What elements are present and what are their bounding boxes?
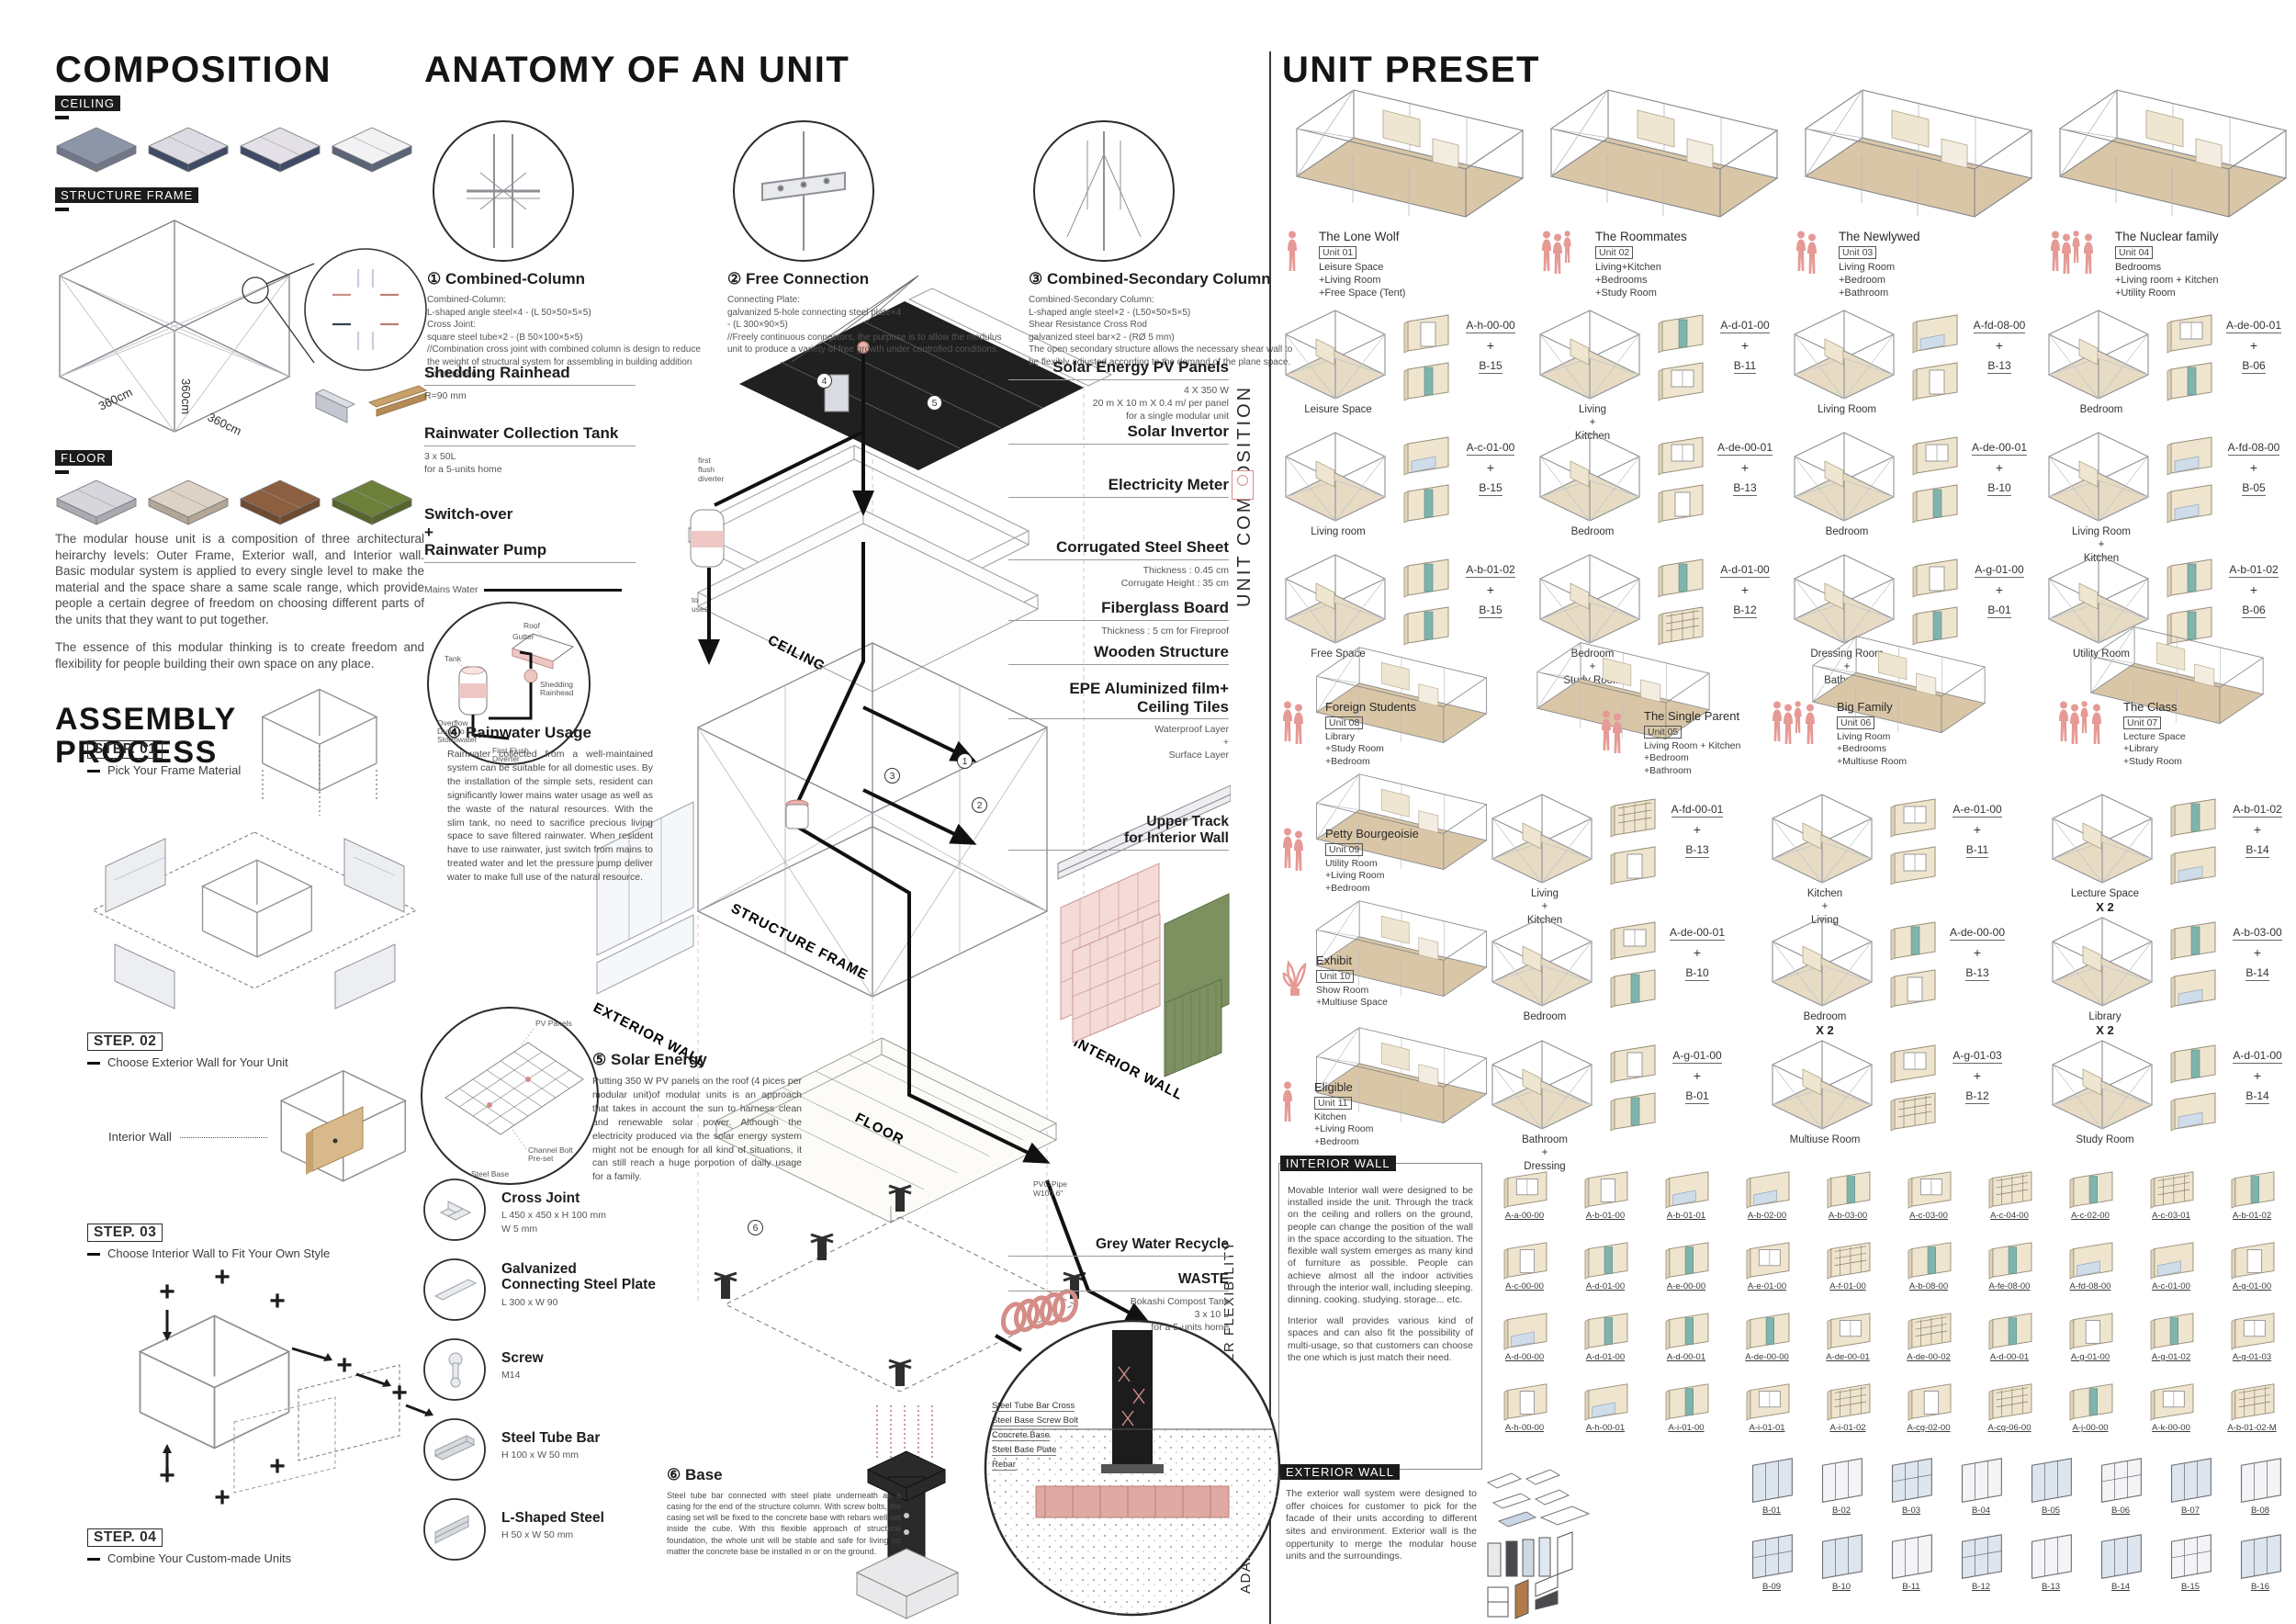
interior-wall-pink-grid — [1073, 914, 1160, 1043]
interior-wall-thumb — [1884, 1042, 1941, 1086]
figure: ④ Rainwater Usage — [447, 724, 653, 742]
figure: Study Room — [2048, 1038, 2162, 1146]
svg-text:+: + — [159, 1277, 175, 1307]
figure — [1651, 311, 1708, 403]
step-02-box: STEP. 02 — [87, 1032, 163, 1051]
figure: Corrugated Steel Sheet — [1008, 538, 1229, 560]
detail-2: ② Free Connection Connecting Plate: galv… — [727, 270, 1003, 356]
exterior-wall-thumb — [1816, 1456, 1867, 1506]
frame-wire — [698, 643, 1047, 997]
interior-wall-thumb — [1901, 1310, 1956, 1352]
interior-wall-thumb — [1884, 966, 1941, 1010]
exterior-code-B-12: B-12 — [1948, 1532, 2014, 1592]
figure: Living + Kitchen — [1536, 308, 1649, 443]
figure: Bedroom — [1536, 525, 1649, 538]
figure: Unit 02 — [1595, 246, 1633, 259]
figure: A-fd-00-01+B-13 — [1664, 792, 1730, 858]
figure: A-de-00-00+B-13 — [1944, 915, 2010, 981]
figure: A-de-00-01+B-13 — [1712, 430, 1778, 496]
iso-room-icon — [1488, 1038, 1596, 1133]
text: Combined-Column — [445, 270, 585, 288]
exterior-code-B-03: B-03 — [1878, 1456, 1944, 1516]
comp-mid-cell-2-2: Study Room A-d-01-00+B-14 — [2048, 1038, 2296, 1157]
interior-code-A-i-01-00: A-i-01-00 — [1648, 1381, 1725, 1433]
iso-room-icon — [1790, 430, 1898, 525]
figure: BedroomX 2 — [1768, 1010, 1882, 1039]
exterior-wall-thumb — [1885, 1456, 1937, 1506]
svg-text:+: + — [391, 1378, 408, 1408]
detail-2-spec: Connecting Plate: galvanized 5-hole conn… — [727, 294, 1003, 356]
part-icon — [422, 1257, 487, 1322]
interior-wall-thumb — [2224, 1168, 2279, 1211]
step-04: STEP. 04 Combine Your Custom-made Units — [87, 1528, 291, 1565]
interior-code-A-b-03-00: A-b-03-00 — [1809, 1168, 1886, 1221]
iso-room-icon — [1790, 308, 1898, 403]
exterior-code-B-15: B-15 — [2157, 1532, 2223, 1592]
interior-wall-thumb — [1604, 1042, 1660, 1086]
iso-room-icon — [1536, 308, 1644, 403]
svg-text:+: + — [336, 1350, 353, 1381]
interior-wall-thumb — [1820, 1239, 1875, 1281]
figure: Screw — [501, 1350, 726, 1366]
figure: A-g-01-00+B-01 — [1966, 552, 2032, 618]
interior-wall-thumb — [1651, 359, 1708, 403]
label-upper-track: Upper Track for Interior Wall — [1008, 814, 1229, 851]
material-angle-steel — [316, 389, 355, 423]
base-block: ⑥ Base Steel tube bar connected with ste… — [667, 1466, 901, 1557]
exterior-code-B-02: B-02 — [1808, 1456, 1874, 1516]
iso-slab-icon — [239, 478, 321, 531]
figure: Electricity Meter — [1008, 476, 1229, 498]
figure — [2160, 311, 2217, 403]
figure: R=90 mm — [424, 389, 636, 402]
interior-wall-thumb — [1497, 1310, 1552, 1352]
interior-code-A-c-03-00: A-c-03-00 — [1890, 1168, 1967, 1221]
figure: Study Room — [2048, 1133, 2162, 1146]
ceiling-tag: CEILING — [55, 96, 120, 111]
iso-container-icon — [1804, 85, 2033, 227]
interior-code-A-a-00-00: A-a-00-00 — [1486, 1168, 1563, 1221]
right-label-2: Electricity Meter — [1008, 476, 1229, 498]
figure: Leisure Space — [1281, 308, 1395, 416]
exterior-wall-tag: EXTERIOR WALL — [1280, 1464, 1400, 1480]
figure: Unit 05 — [1644, 726, 1682, 739]
intro-paragraph-2: The essence of this modular thinking is … — [55, 639, 424, 671]
interior-wall-thumb — [2144, 1239, 2199, 1281]
interior-wall-text: Movable Interior wall were designed to b… — [1288, 1185, 1473, 1364]
detail-3: ③ Combined-Secondary Column Combined-Sec… — [1029, 270, 1304, 368]
figure: Living Room +Bedrooms +Multiuse Room — [1837, 731, 1907, 768]
exterior-wall-thumb — [1885, 1532, 1937, 1582]
preset-unit-caption-Unit 02: The RoommatesUnit 02Living+Kitchen +Bedr… — [1540, 230, 1770, 299]
dash — [55, 116, 69, 119]
callout-3: 3 — [884, 768, 900, 784]
svg-text:Gutter: Gutter — [512, 632, 535, 641]
interior-code-A-c-02-00: A-c-02-00 — [2052, 1168, 2129, 1221]
interior-wall-thumb — [1604, 1089, 1660, 1133]
part-icon — [422, 1497, 487, 1562]
exterior-code-B-09: B-09 — [1739, 1532, 1805, 1592]
figure: The Class — [2123, 700, 2186, 714]
detail-circle-secondary-column — [1030, 118, 1177, 265]
detail-circle-free-connection — [730, 118, 877, 265]
right-label-0: Solar Energy PV Panels4 X 350 W 20 m X 1… — [1008, 358, 1229, 423]
material-wood — [369, 386, 426, 416]
figure — [1397, 311, 1454, 403]
svg-text:Tank: Tank — [445, 654, 462, 663]
interior-wall-thumb — [1604, 919, 1660, 963]
interior-wall-thumb — [1884, 795, 1941, 840]
figure — [2164, 1042, 2221, 1133]
exterior-misc-parts-figure — [1480, 1466, 1733, 1620]
interior-wall-thumb — [1982, 1168, 2037, 1211]
figure: The Lone WolfUnit 01Leisure Space +Livin… — [1319, 230, 1405, 299]
interior-wall-thumb — [1906, 311, 1963, 355]
exterior-wall-thumb — [1746, 1456, 1797, 1506]
part-2: ScrewM14 — [422, 1337, 726, 1411]
interior-code-A-cg-02-00: A-cg-02-00 — [1890, 1381, 1967, 1433]
comp-mid-cell-2-0: Bathroom + Dressing A-g-01-00+B-01 — [1488, 1038, 1738, 1157]
figure: EligibleUnit 11Kitchen +Living Room +Bed… — [1314, 1080, 1374, 1148]
figure: The ClassUnit 07Lecture Space +Library +… — [2123, 700, 2186, 768]
dash — [55, 470, 69, 474]
right-label-6: EPE Aluminized film+ Ceiling TilesWaterp… — [1008, 680, 1229, 762]
dotted-leader — [180, 1137, 267, 1138]
right-label-stack: Solar Energy PV Panels4 X 350 W 20 m X 1… — [1008, 358, 1229, 753]
figure: Bedroom — [1488, 915, 1602, 1023]
interior-wall-thumb — [2160, 434, 2217, 478]
callout-6: 6 — [748, 1220, 763, 1235]
figure: Show Room +Multiuse Space — [1316, 985, 1388, 1009]
figure: Library +Study Room +Bedroom — [1325, 731, 1416, 768]
figure: X 2 — [2048, 1023, 2162, 1038]
ceiling-thumbnails — [55, 125, 413, 178]
exterior-wall-thumb — [2095, 1532, 2146, 1582]
interior-code-A-k-00-00: A-k-00-00 — [2133, 1381, 2210, 1433]
interior-code-A-fe-08-00: A-fe-08-00 — [1971, 1239, 2048, 1291]
iso-slab-icon — [55, 125, 138, 178]
figure: Unit 10 — [1316, 970, 1354, 983]
figure: Unit 03 — [1839, 246, 1876, 259]
figure: The Nuclear familyUnit 04Bedrooms +Livin… — [2115, 230, 2219, 299]
figure: Foreign StudentsUnit 08Library +Study Ro… — [1325, 700, 1416, 768]
interior-code-A-g-01-02: A-g-01-02 — [2133, 1310, 2210, 1362]
figure: A-b-01-02+B-15 — [1458, 552, 1524, 618]
rainwater-usage-text: Rainwater collected from a well-maintain… — [447, 748, 653, 885]
figure: Wooden Structure — [1008, 643, 1229, 665]
interior-code-A-b-01-02-M: A-b-01-02-M — [2213, 1381, 2290, 1433]
interior-code-A-cg-06-00: A-cg-06-00 — [1971, 1381, 2048, 1433]
figure — [1651, 556, 1708, 648]
exterior-wall-thumb — [2095, 1456, 2146, 1506]
svg-text:360cm: 360cm — [96, 385, 135, 413]
step-01: STEP. 01 Pick Your Frame Material — [87, 740, 241, 777]
figure: Unit 11 — [1314, 1097, 1352, 1110]
callout-4: 4 — [816, 373, 832, 389]
part-icon — [422, 1178, 487, 1242]
exterior-wall-text: The exterior wall system were designed t… — [1286, 1488, 1477, 1563]
mid-left-caption-Unit 11: EligibleUnit 11Kitchen +Living Room +Bed… — [1281, 1080, 1492, 1148]
interior-code-A-c-04-00: A-c-04-00 — [1971, 1168, 2048, 1221]
part-1: Galvanized Connecting Steel PlateL 300 x… — [422, 1257, 726, 1331]
interior-code-A-de-00-02: A-de-00-02 — [1890, 1310, 1967, 1362]
interior-code-A-i-01-01: A-i-01-01 — [1728, 1381, 1806, 1433]
figure: Bedroom — [2044, 308, 2158, 416]
figure — [1884, 795, 1941, 887]
interior-wall-thumb — [1901, 1168, 1956, 1211]
label-to-uses: to uses — [692, 595, 708, 614]
exterior-wall-thumb — [2165, 1456, 2216, 1506]
figure: Living + Kitchen — [1488, 792, 1602, 927]
interior-wall-thumb — [1884, 919, 1941, 963]
interior-wall-thumb — [1982, 1239, 2037, 1281]
exterior-wall-thumb — [2025, 1532, 2077, 1582]
figure — [1906, 434, 1963, 525]
figure: L 450 x 450 x H 100 mm W 5 mm — [501, 1209, 726, 1235]
iso-slab-icon — [239, 125, 321, 178]
interior-code-A-c-03-01: A-c-03-01 — [2133, 1168, 2210, 1221]
anatomy-title: ANATOMY OF AN UNIT — [424, 50, 850, 91]
exterior-code-B-06: B-06 — [2088, 1456, 2154, 1516]
figure: The Newlywed — [1839, 230, 1920, 243]
solar-detail-circle: PV Panels Channel BoltPre-set Steel Base — [418, 987, 606, 1208]
interior-wall-thumb — [1659, 1168, 1714, 1211]
interior-wall-thumb — [2224, 1310, 2279, 1352]
text: ⑥ — [667, 1466, 681, 1483]
person-icon — [1600, 709, 1637, 755]
text: ② — [727, 270, 741, 288]
text: Free Connection — [746, 270, 869, 288]
figure: ScrewM14 — [501, 1337, 726, 1382]
figure: A-de-00-01+B-10 — [1664, 915, 1730, 981]
figure: 3 x 50L for a 5-units home — [424, 450, 636, 476]
interior-wall-thumb — [2164, 1089, 2221, 1133]
interior-wall-thumb — [2164, 795, 2221, 840]
rain-tank — [459, 667, 487, 715]
figure: The Roommates — [1595, 230, 1687, 243]
interior-wall-thumb — [2063, 1381, 2118, 1423]
figure: Unit 08 — [1325, 716, 1363, 729]
iso-room-icon — [2048, 792, 2156, 887]
mid-caption-Unit 07: The ClassUnit 07Lecture Space +Library +… — [2057, 700, 2232, 768]
comp-cell-1-1: Bedroom A-de-00-01+B-13 — [1536, 430, 1785, 549]
figure: Movable Interior wall were designed to b… — [1288, 1185, 1473, 1306]
comp-mid-cell-1-2: LibraryX 2 A-b-03-00+B-14 — [2048, 915, 2296, 1034]
figure — [1884, 919, 1941, 1010]
interior-wall-thumb — [1397, 603, 1454, 648]
figure: A-b-01-02+B-14 — [2224, 792, 2290, 858]
figure: Bedroom — [2044, 403, 2158, 416]
part-icon — [422, 1417, 487, 1482]
interior-wall-thumb — [1739, 1381, 1795, 1423]
figure: The Single Parent — [1644, 709, 1740, 723]
svg-text:Pre-set: Pre-set — [528, 1154, 554, 1163]
iso-container-icon — [2058, 85, 2288, 227]
svg-text:PV Panels: PV Panels — [535, 1019, 572, 1028]
text: ③ — [1029, 270, 1042, 288]
figure: Big Family — [1837, 700, 1907, 714]
figure: ExhibitUnit 10Show Room +Multiuse Space — [1316, 953, 1388, 1009]
comp-mid-cell-0-1: Kitchen + Living A-e-01-00+B-11 — [1768, 792, 2018, 911]
svg-text:+: + — [269, 1286, 286, 1316]
label-waste: WASTE Bokashi Compost Tank 3 x 10 L for … — [1008, 1271, 1229, 1334]
figure: Cross JointL 450 x 450 x H 100 mm W 5 mm — [501, 1178, 726, 1235]
iso-room-icon — [1281, 308, 1390, 403]
iso-container-icon — [1549, 85, 1779, 227]
interior-wall-thumb — [1651, 311, 1708, 355]
interior-wall-thumb — [1982, 1310, 2037, 1352]
interior-code-A-b-01-02: A-b-01-02 — [2213, 1168, 2290, 1221]
figure: A-e-01-00+B-11 — [1944, 792, 2010, 858]
exterior-code-B-14: B-14 — [2088, 1532, 2154, 1592]
exterior-code-B-16: B-16 — [2227, 1532, 2293, 1592]
figure: Kitchen +Living Room +Bedroom — [1314, 1111, 1374, 1148]
figure — [1884, 1042, 1941, 1133]
interior-wall-thumb — [1820, 1168, 1875, 1211]
interior-wall-callout: Interior Wall — [108, 1130, 267, 1144]
label-pvc-pipe: PVC Pipe W100 6" — [1033, 1179, 1067, 1198]
interior-code-A-d-01-00: A-d-01-00 — [1567, 1239, 1644, 1291]
detail-circle-combined-column — [430, 118, 577, 265]
label-mains-water: Mains Water — [424, 584, 622, 595]
iso-slab-icon — [147, 478, 230, 531]
figure: Solar Invertor — [1008, 423, 1229, 445]
comp-cell-1-3: Living Room + Kitchen A-fd-08-00+B-05 — [2044, 430, 2294, 549]
figure: The Nuclear family — [2115, 230, 2219, 243]
figure: Bathroom + Dressing — [1488, 1038, 1602, 1173]
mid-left-caption-Unit 10: ExhibitUnit 10Show Room +Multiuse Space — [1281, 953, 1492, 1009]
figure: Utility Room +Living Room +Bedroom — [1325, 858, 1419, 895]
text: Interior Wall — [108, 1130, 172, 1144]
dash — [55, 208, 69, 211]
figure: A-d-01-00+B-11 — [1712, 308, 1778, 374]
exterior-wall-thumb — [1816, 1532, 1867, 1582]
interior-wall-thumb — [2063, 1239, 2118, 1281]
figure: Living room — [1281, 525, 1395, 538]
interior-wall-thumb — [2144, 1381, 2199, 1423]
interior-wall-thumb — [2164, 966, 2221, 1010]
interior-code-A-b-01-01: A-b-01-01 — [1648, 1168, 1725, 1221]
interior-wall-thumb — [1397, 556, 1454, 600]
exterior-code-B-01: B-01 — [1739, 1456, 1805, 1516]
text: ① — [427, 270, 441, 288]
exterior-wall-thumb — [1955, 1532, 2007, 1582]
interior-wall-thumb — [1906, 359, 1963, 403]
label-shedding-rainhead: Shedding Rainhead R=90 mm — [424, 364, 636, 402]
poster-board: COMPOSITION CEILING STRUCTURE FRAME 360c… — [0, 0, 2296, 1624]
interior-wall-thumb — [1397, 311, 1454, 355]
person-icon — [2057, 700, 2116, 746]
figure: Lecture Space +Library +Study Room — [2123, 731, 2186, 768]
text: Solar Energy — [611, 1051, 707, 1068]
figure: A-de-00-01+B-06 — [2221, 308, 2287, 374]
text: Mains Water — [424, 584, 478, 595]
figure: Unit 04 — [2115, 246, 2153, 259]
interior-code-A-g-01-03: A-g-01-03 — [2213, 1310, 2290, 1362]
step-03: STEP. 03 Choose Interior Wall to Fit You… — [87, 1224, 330, 1260]
iso-slab-icon — [147, 125, 230, 178]
interior-wall-mini-figure — [1054, 900, 1229, 1084]
iso-slab-icon — [55, 478, 138, 531]
figure: Bedroom — [1536, 430, 1649, 538]
figure — [1604, 1042, 1660, 1133]
exterior-code-B-08: B-08 — [2227, 1456, 2293, 1516]
structure-frame-figure: 360cm360cm360cm — [55, 213, 432, 447]
interior-code-A-d-01-00: A-d-01-00 — [1567, 1310, 1644, 1362]
iso-slab-icon — [331, 478, 413, 531]
text: Base — [685, 1466, 723, 1483]
person-icon — [1771, 700, 1829, 746]
preset-unit-caption-Unit 04: The Nuclear familyUnit 04Bedrooms +Livin… — [2049, 230, 2279, 299]
figure: Bedroom — [1790, 430, 1904, 538]
interior-code-A-d-00-01: A-d-00-01 — [1648, 1310, 1725, 1362]
exterior-wall-thumb — [1955, 1456, 2007, 1506]
figure: Waterproof Layer + Surface Layer — [1008, 723, 1229, 762]
figure: Exhibit — [1316, 953, 1388, 967]
figure: The Lone Wolf — [1319, 230, 1405, 243]
interior-wall-thumb — [1906, 481, 1963, 525]
interior-wall-thumb — [1578, 1381, 1633, 1423]
step-04-caption: Combine Your Custom-made Units — [87, 1551, 291, 1565]
figure: L 300 x W 90 — [501, 1296, 726, 1309]
mid-caption-Unit 06: Big FamilyUnit 06Living Room +Bedrooms +… — [1771, 700, 1945, 768]
iso-room-icon — [1536, 430, 1644, 525]
interior-wall-thumb — [1604, 843, 1660, 887]
interior-wall-thumb — [1739, 1168, 1795, 1211]
figure: A-de-00-01+B-10 — [1966, 430, 2032, 496]
figure: The RoommatesUnit 02Living+Kitchen +Bedr… — [1595, 230, 1687, 299]
figure: Living Room +Bedroom +Bathroom — [1839, 261, 1920, 299]
iso-room-icon — [1768, 792, 1876, 887]
comp-cell-1-0: Living room A-c-01-00+B-15 — [1281, 430, 1531, 549]
figure: Grey Water Recycle — [1008, 1236, 1229, 1257]
solar-energy-block: ⑤ Solar Energy Putting 350 W PV panels o… — [592, 1051, 802, 1184]
figure: M14 — [501, 1369, 726, 1382]
figure: A-b-01-02+B-06 — [2221, 552, 2287, 618]
label-switchover-pump: Switch-over + Rainwater Pump — [424, 505, 636, 563]
interior-code-A-de-00-01: A-de-00-01 — [1809, 1310, 1886, 1362]
figure: X 2 — [1768, 1023, 1882, 1038]
interior-wall-thumb — [2160, 311, 2217, 355]
figure: Foreign Students — [1325, 700, 1416, 714]
figure: Thickness : 5 cm for Fireproof — [1008, 625, 1229, 637]
svg-text:Roof: Roof — [523, 621, 541, 630]
figure: A-g-01-03+B-12 — [1944, 1038, 2010, 1104]
comp-cell-0-2: Living Room A-fd-08-00+B-13 — [1790, 308, 2040, 427]
preset-unit-render-Unit 03 — [1804, 85, 2033, 227]
preset-unit-render-Unit 04 — [2058, 85, 2288, 227]
exterior-wall-thumb — [2025, 1456, 2077, 1506]
exterior-wall-thumb — [1746, 1532, 1797, 1582]
figure: A-d-01-00+B-12 — [1712, 552, 1778, 618]
interior-wall-thumb — [1901, 1381, 1956, 1423]
figure: Multiuse Room — [1768, 1038, 1882, 1146]
interior-code-A-j-00-00: A-j-00-00 — [2052, 1381, 2129, 1433]
interior-code-A-e-01-00: A-e-01-00 — [1728, 1239, 1806, 1291]
intro-paragraph-1: The modular house unit is a composition … — [55, 531, 424, 627]
exterior-wall-thumb — [2165, 1532, 2216, 1582]
figure — [1237, 475, 1248, 486]
interior-code-A-h-00-00: A-h-00-00 — [1486, 1381, 1563, 1433]
interior-wall-thumb — [1578, 1310, 1633, 1352]
label-grey-water: Grey Water Recycle — [1008, 1236, 1229, 1257]
figure — [2164, 795, 2221, 887]
figure: Multiuse Room — [1768, 1133, 1882, 1146]
preset-unit-render-Unit 01 — [1295, 85, 1525, 227]
iso-room-icon — [1488, 792, 1596, 887]
comp-mid-cell-1-0: Bedroom A-de-00-01+B-10 — [1488, 915, 1738, 1034]
floor-tag: FLOOR — [55, 450, 112, 466]
